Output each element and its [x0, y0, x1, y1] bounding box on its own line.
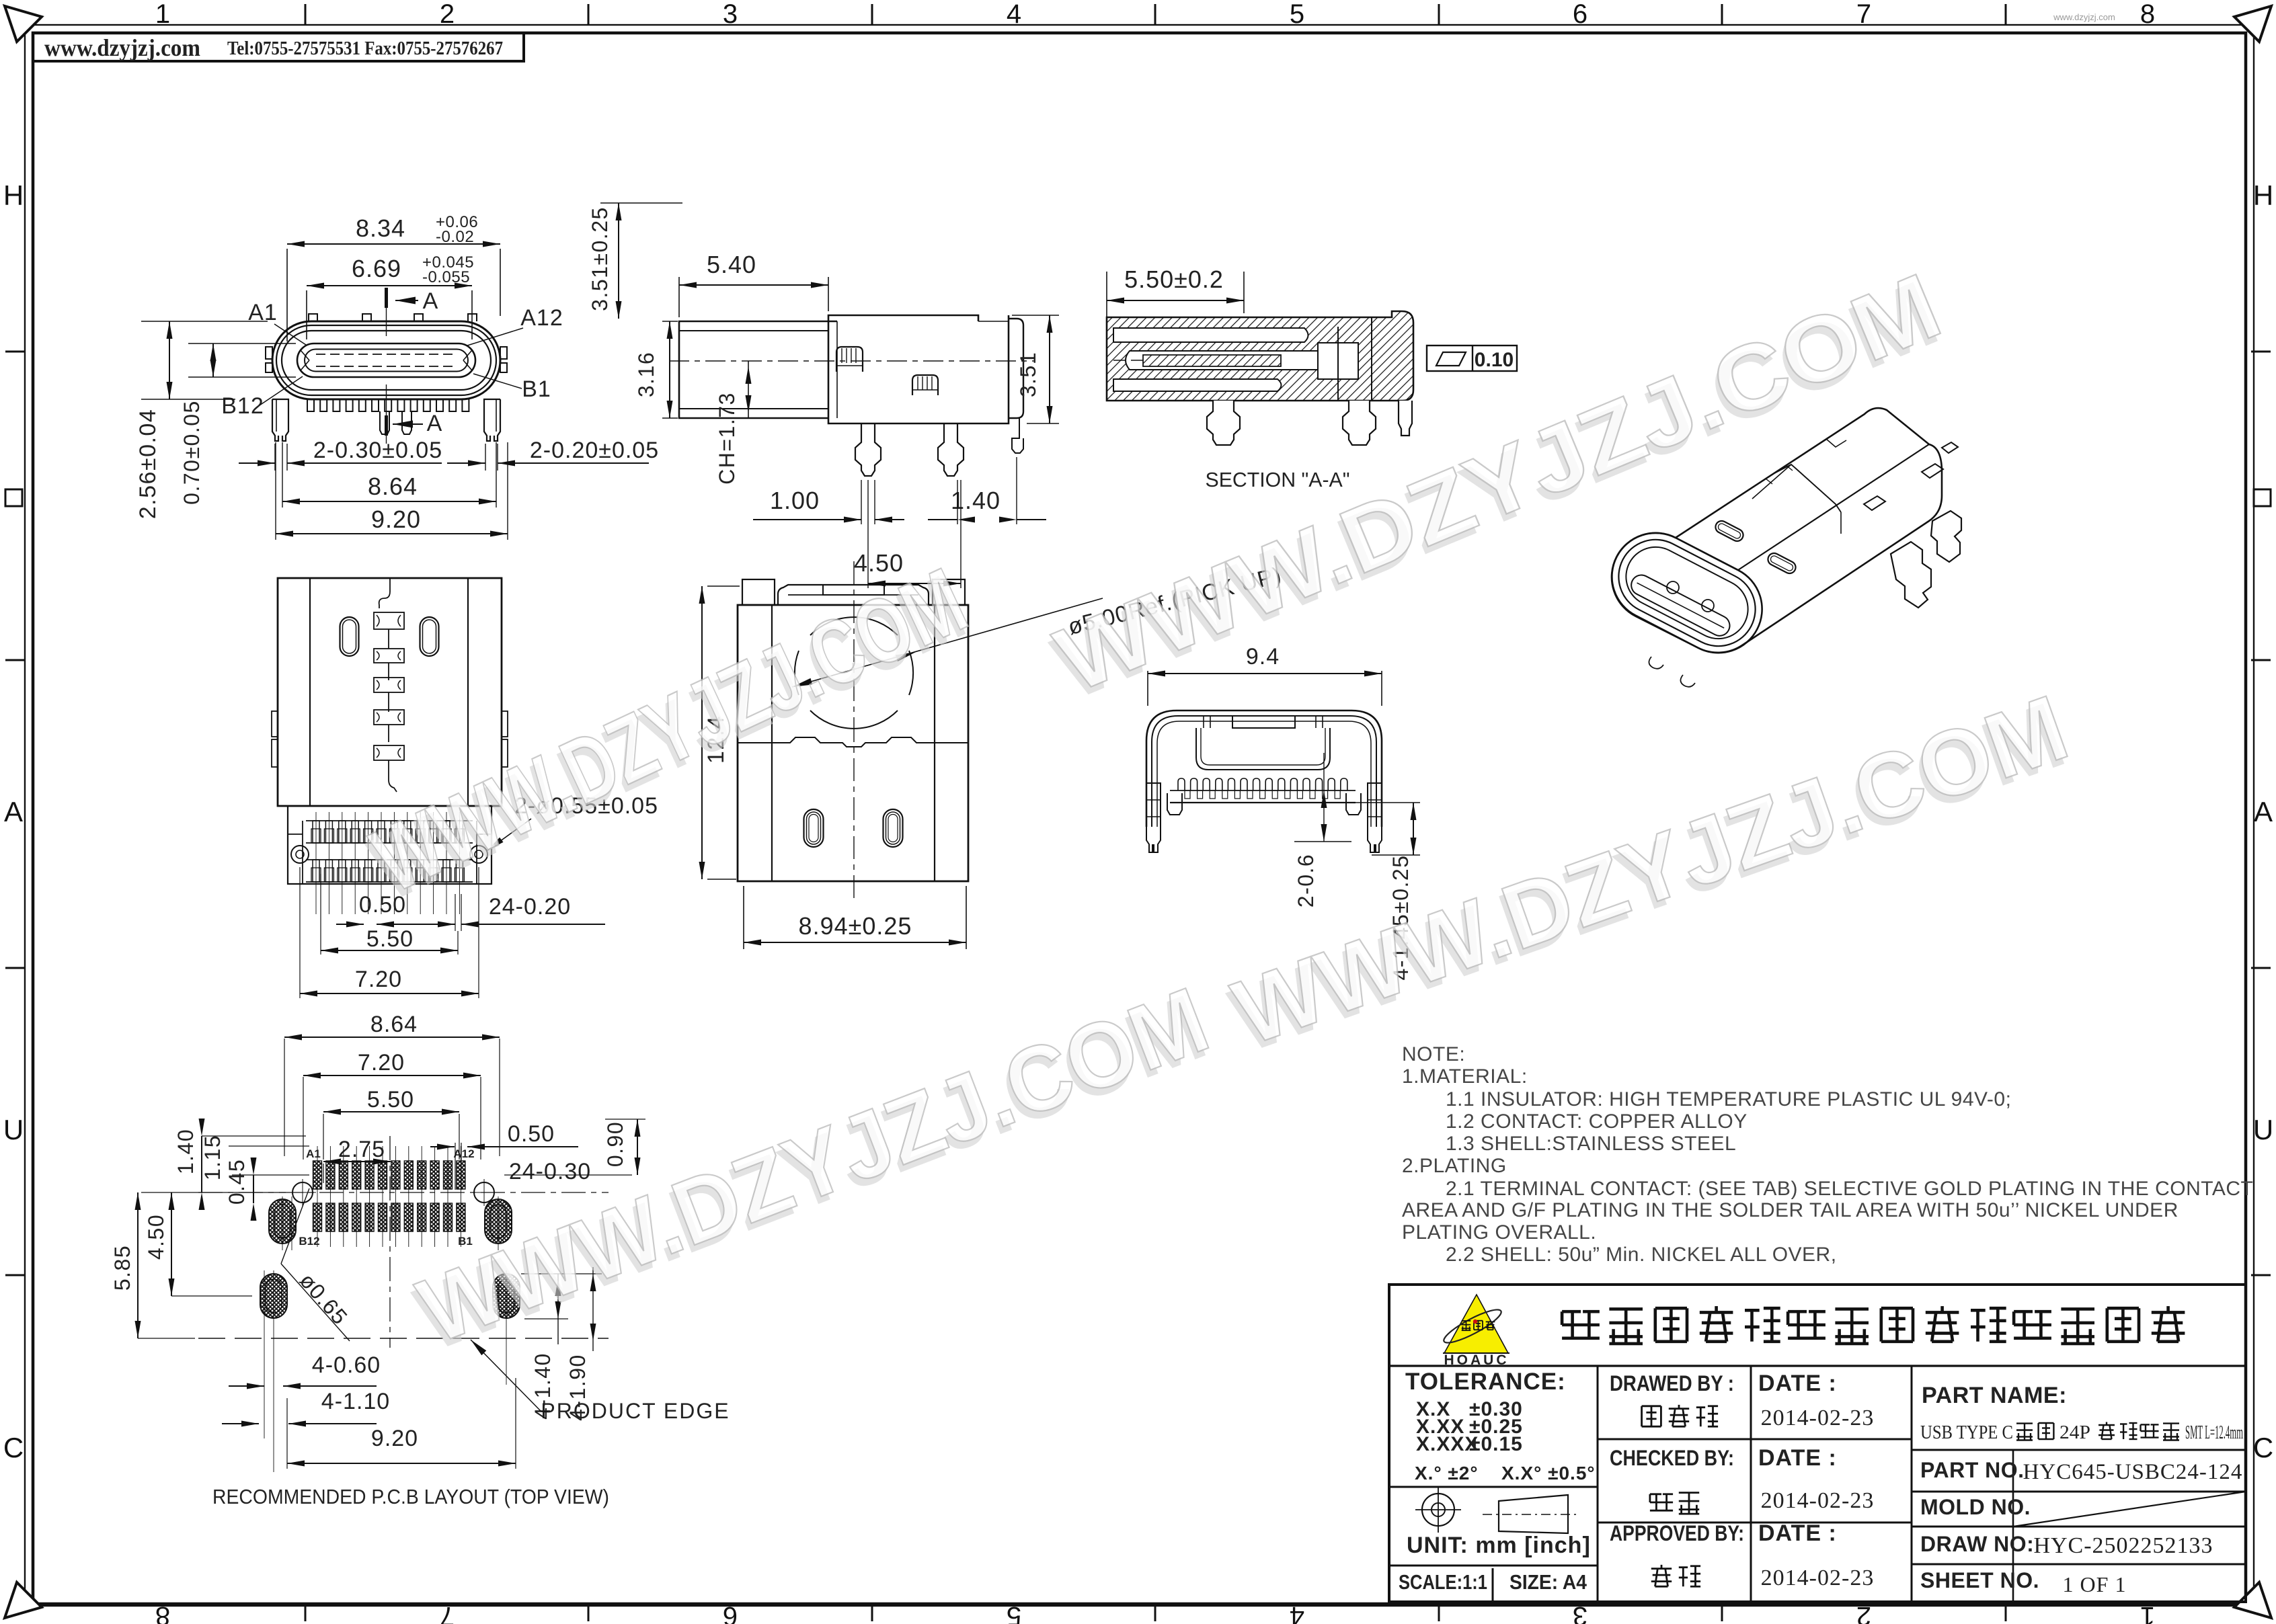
svg-text:A: A [4, 796, 23, 827]
svg-text:1.40: 1.40 [173, 1129, 198, 1174]
svg-text:24-0.20: 24-0.20 [489, 894, 571, 920]
svg-text:4-1.10: 4-1.10 [321, 1389, 390, 1414]
svg-text:±0.15: ±0.15 [1469, 1433, 1523, 1455]
svg-text:1.1 INSULATOR: HIGH TEMPERA: 1.1 INSULATOR: HIGH TEMPERATURE PLASTIC … [1446, 1088, 2011, 1110]
svg-text:HOAUC: HOAUC [1444, 1352, 1509, 1368]
svg-text:USB TYPE C: USB TYPE C [1920, 1422, 2013, 1443]
svg-text:2014-02-23: 2014-02-23 [1761, 1488, 1875, 1513]
svg-text:SHEET NO.: SHEET NO. [1920, 1568, 2039, 1592]
svg-text:DRAW NO:: DRAW NO: [1920, 1532, 2034, 1556]
svg-text:PART NO.: PART NO. [1920, 1458, 2025, 1482]
svg-text:HYC645-USBC24-124: HYC645-USBC24-124 [2023, 1460, 2243, 1484]
svg-text:DATE :: DATE : [1758, 1445, 1837, 1471]
svg-text:SIZE: A4: SIZE: A4 [1509, 1570, 1587, 1594]
svg-text:APPROVED BY:: APPROVED BY: [1610, 1521, 1744, 1545]
svg-text:SCALE:1:1: SCALE:1:1 [1399, 1570, 1487, 1594]
svg-text:TOLERANCE:: TOLERANCE: [1405, 1369, 1566, 1395]
svg-text:3.51: 3.51 [1016, 352, 1040, 397]
svg-text:RECOMMENDED P.C.B LAYOUT (T: RECOMMENDED P.C.B LAYOUT (TOP VIEW) [212, 1485, 609, 1508]
svg-text:0.70±0.05: 0.70±0.05 [180, 400, 204, 505]
svg-text:0.50: 0.50 [508, 1121, 555, 1147]
svg-text:DATE :: DATE : [1758, 1520, 1837, 1546]
svg-text:1 OF 1: 1 OF 1 [2063, 1572, 2127, 1596]
svg-text:C: C [2253, 1432, 2273, 1463]
svg-text:PART NAME:: PART NAME: [1922, 1383, 2067, 1408]
svg-text:8.34: 8.34 [356, 214, 405, 242]
svg-text:1.MATERIAL:: 1.MATERIAL: [1402, 1065, 1528, 1088]
svg-text:-0.02: -0.02 [436, 228, 474, 246]
svg-text:24P: 24P [2059, 1422, 2090, 1443]
svg-text:6: 6 [723, 1601, 738, 1624]
svg-text:CHECKED BY:: CHECKED BY: [1610, 1446, 1734, 1470]
svg-text:7: 7 [440, 1601, 455, 1624]
svg-text:2-0.20±0.05: 2-0.20±0.05 [530, 438, 659, 463]
svg-text:2: 2 [1856, 1601, 1871, 1624]
svg-text:B12: B12 [299, 1235, 319, 1248]
svg-text:4: 4 [1007, 0, 1021, 29]
svg-text:24-0.30: 24-0.30 [509, 1159, 591, 1184]
svg-text:2.2 SHELL: 50u” Min. NICKE: 2.2 SHELL: 50u” Min. NICKEL ALL OVER, [1446, 1244, 1837, 1266]
svg-text:6: 6 [1573, 0, 1587, 29]
svg-text:1.3 SHELL:STAINLESS STEEL: 1.3 SHELL:STAINLESS STEEL [1446, 1133, 1736, 1155]
svg-text:2-0.6: 2-0.6 [1294, 854, 1318, 907]
svg-text:Tel:0755-27575531 Fax:0755-27: Tel:0755-27575531 Fax:0755-27576267 [227, 38, 503, 59]
svg-text:2014-02-23: 2014-02-23 [1761, 1566, 1875, 1590]
svg-text:5.50: 5.50 [367, 1087, 414, 1112]
svg-text:5: 5 [1007, 1601, 1021, 1624]
svg-text:1.00: 1.00 [770, 487, 820, 514]
svg-text:A: A [427, 411, 442, 436]
svg-text:7: 7 [1856, 0, 1871, 29]
svg-text:0.90: 0.90 [603, 1121, 627, 1167]
svg-text:0.45: 0.45 [225, 1159, 249, 1205]
svg-text:0.10: 0.10 [1475, 349, 1514, 371]
svg-text:A1: A1 [306, 1147, 321, 1160]
svg-text:5.40: 5.40 [707, 251, 756, 278]
svg-text:www.dzyjzj.com: www.dzyjzj.com [44, 34, 200, 61]
svg-text:1.15: 1.15 [200, 1135, 225, 1180]
svg-text:4-0.60: 4-0.60 [312, 1352, 381, 1378]
svg-text:A12: A12 [453, 1147, 474, 1160]
svg-text:A: A [2254, 796, 2273, 827]
svg-text:NOTE:: NOTE: [1402, 1043, 1465, 1065]
svg-text:H: H [3, 179, 24, 211]
svg-text:2.75: 2.75 [338, 1137, 385, 1162]
svg-text:U: U [2253, 1114, 2273, 1145]
svg-text:A12: A12 [520, 305, 563, 331]
svg-text:MOLD NO.: MOLD NO. [1920, 1495, 2031, 1519]
svg-text:SMT L=12.4mm: SMT L=12.4mm [2185, 1422, 2243, 1443]
svg-text:2.56±0.04: 2.56±0.04 [135, 409, 161, 520]
svg-text:3: 3 [1573, 1601, 1587, 1624]
svg-text:2.1 TERMINAL CONTACT: (SEE: 2.1 TERMINAL CONTACT: (SEE TAB) SELECTIV… [1446, 1178, 2253, 1200]
svg-text:U: U [3, 1114, 24, 1145]
svg-text:3.51±0.25: 3.51±0.25 [588, 206, 612, 311]
svg-text:8.64: 8.64 [368, 473, 418, 500]
svg-text:7.20: 7.20 [355, 967, 402, 992]
svg-text:2014-02-23: 2014-02-23 [1761, 1406, 1875, 1430]
svg-text:PRODUCT EDGE: PRODUCT EDGE [541, 1399, 730, 1423]
svg-text:1: 1 [2140, 1601, 2155, 1624]
svg-text:8: 8 [2140, 0, 2155, 29]
svg-text:C: C [3, 1432, 24, 1463]
svg-text:AREA AND G/F PLATING IN T: AREA AND G/F PLATING IN THE SOLDER TAIL … [1402, 1199, 2179, 1221]
svg-text:7.20: 7.20 [358, 1050, 405, 1075]
svg-text:8.94±0.25: 8.94±0.25 [799, 912, 912, 940]
svg-text:H: H [2253, 179, 2273, 211]
svg-text:DRAWED BY :: DRAWED BY : [1610, 1371, 1734, 1395]
svg-text:www.dzyjzj.com: www.dzyjzj.com [2053, 12, 2115, 22]
svg-text:2: 2 [440, 0, 455, 29]
svg-text:1: 1 [155, 0, 170, 29]
svg-text:DATE :: DATE : [1758, 1371, 1837, 1396]
svg-text:PLATING OVERALL.: PLATING OVERALL. [1402, 1221, 1596, 1244]
svg-text:4: 4 [1290, 1601, 1304, 1624]
svg-text:5.85: 5.85 [110, 1245, 134, 1291]
svg-text:X.X° ±0.5°: X.X° ±0.5° [1501, 1463, 1596, 1484]
svg-text:4.50: 4.50 [144, 1214, 168, 1260]
svg-text:6.69: 6.69 [352, 255, 401, 282]
svg-text:8: 8 [155, 1601, 170, 1624]
svg-text:5.50±0.2: 5.50±0.2 [1124, 266, 1224, 293]
svg-text:X.° ±2°: X.° ±2° [1415, 1463, 1479, 1484]
svg-text:B1: B1 [522, 376, 551, 402]
svg-text:5.50: 5.50 [366, 926, 414, 952]
svg-text:B12: B12 [221, 393, 264, 419]
svg-text:1.2 CONTACT: COPPER ALLOY: 1.2 CONTACT: COPPER ALLOY [1446, 1110, 1748, 1133]
svg-text:A: A [423, 288, 438, 314]
svg-text:9.20: 9.20 [371, 1426, 418, 1451]
svg-text:1.40: 1.40 [951, 487, 1000, 514]
svg-text:SECTION "A-A": SECTION "A-A" [1206, 468, 1350, 491]
svg-text:9.20: 9.20 [371, 505, 421, 533]
svg-text:UNIT: mm [inch]: UNIT: mm [inch] [1407, 1533, 1591, 1558]
svg-text:3.16: 3.16 [634, 352, 658, 397]
svg-text:3: 3 [723, 0, 738, 29]
svg-text:2-0.30±0.05: 2-0.30±0.05 [313, 438, 442, 463]
svg-text:HYC-2502252133: HYC-2502252133 [2033, 1533, 2213, 1558]
svg-text:CH=1.73: CH=1.73 [715, 392, 739, 485]
svg-text:8.64: 8.64 [370, 1012, 418, 1037]
svg-text:5: 5 [1290, 0, 1304, 29]
svg-text:-0.055: -0.055 [422, 268, 470, 286]
svg-text:2.PLATING: 2.PLATING [1402, 1155, 1507, 1177]
